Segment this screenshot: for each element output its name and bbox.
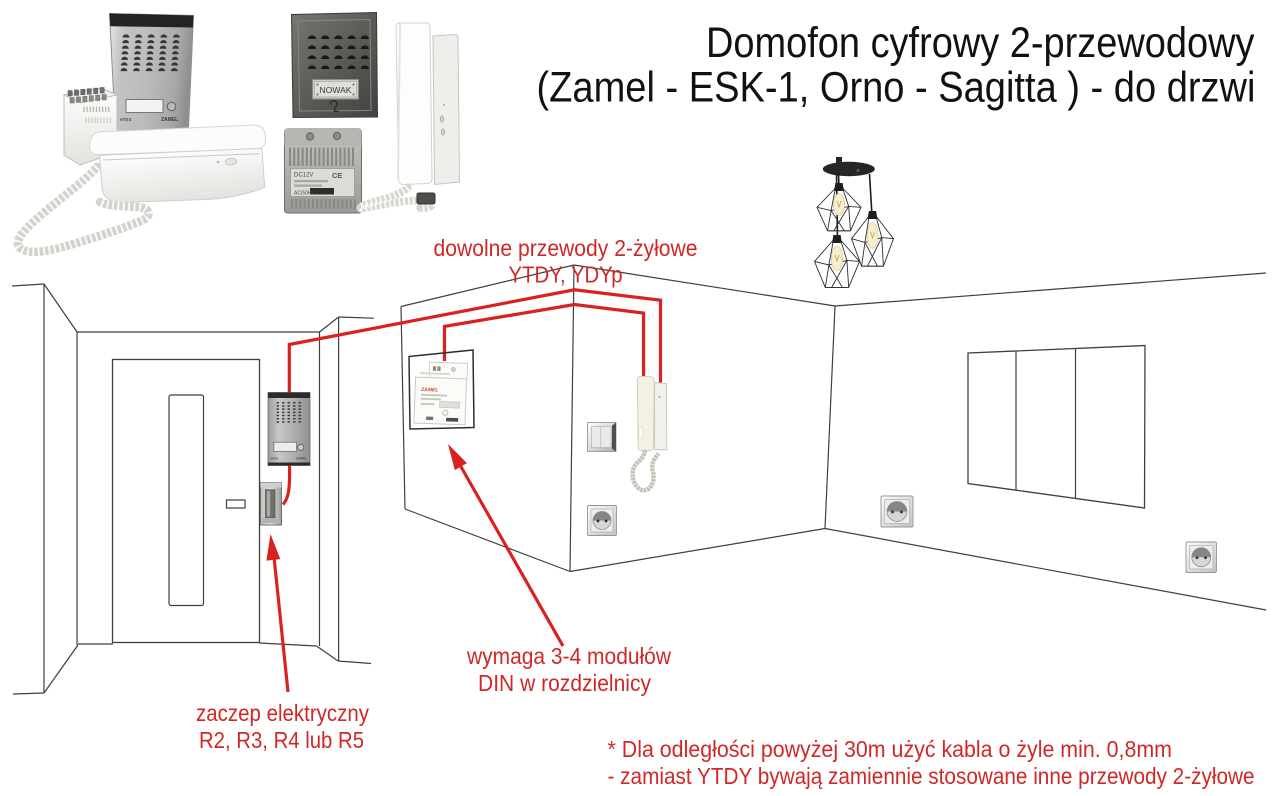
svg-text:CE: CE bbox=[332, 171, 342, 180]
svg-text:ZAMEL: ZAMEL bbox=[420, 387, 438, 394]
svg-text:entra: entra bbox=[271, 457, 279, 461]
svg-text:(Zamel - ESK-1, Orno - Sagitta: (Zamel - ESK-1, Orno - Sagitta ) - do dr… bbox=[537, 64, 1256, 112]
svg-text:wymaga 3-4 modułów: wymaga 3-4 modułów bbox=[466, 643, 671, 669]
svg-text:R2, R3, R4 lub R5: R2, R3, R4 lub R5 bbox=[199, 727, 364, 753]
svg-text:- zamiast YTDY bywają zamienni: - zamiast YTDY bywają zamiennie stosowan… bbox=[608, 763, 1255, 789]
svg-text:ZAMEL: ZAMEL bbox=[161, 117, 178, 123]
svg-text:Domofon cyfrowy 2-przewodowy: Domofon cyfrowy 2-przewodowy bbox=[706, 19, 1255, 67]
svg-text:ZAMEL: ZAMEL bbox=[296, 457, 307, 461]
svg-text:DC12V: DC12V bbox=[294, 173, 313, 179]
svg-text:zaczep elektryczny: zaczep elektryczny bbox=[196, 700, 369, 726]
svg-text:NOWAK: NOWAK bbox=[320, 86, 353, 95]
svg-text:AC/50Hz: AC/50Hz bbox=[294, 191, 315, 197]
svg-text:* Dla odległości powyżej 30m u: * Dla odległości powyżej 30m użyć kabla … bbox=[608, 736, 1173, 762]
svg-text:dowolne przewody 2-żyłowe: dowolne przewody 2-żyłowe bbox=[434, 235, 698, 261]
svg-text:DIN w rozdzielnicy: DIN w rozdzielnicy bbox=[478, 670, 651, 696]
svg-text:entra: entra bbox=[120, 117, 132, 123]
svg-text:YTDY, YDYp: YTDY, YDYp bbox=[509, 262, 623, 288]
